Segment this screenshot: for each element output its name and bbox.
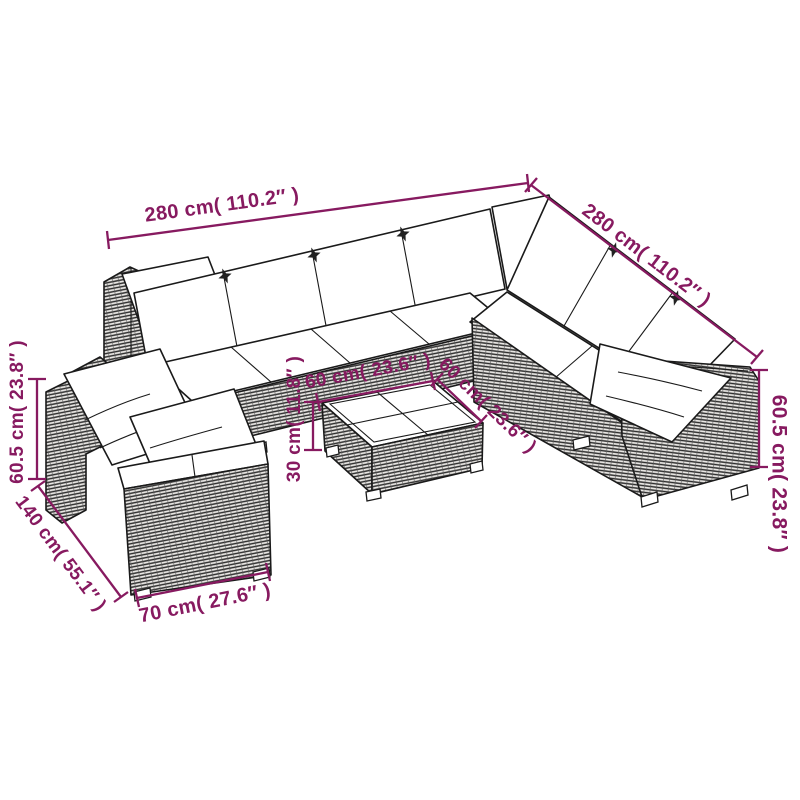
dimension-sofa-height-left: 60.5 cm( 23.8″ ) xyxy=(7,340,46,484)
sofa-foot xyxy=(731,485,748,500)
dimension-label-sofa-height-right: 60.5 cm( 23.8″ ) xyxy=(767,395,790,553)
diagram-canvas: 280 cm( 110.2″ ) 280 cm( 110.2″ ) 60.5 c… xyxy=(0,0,800,800)
product-dimension-diagram: 280 cm( 110.2″ ) 280 cm( 110.2″ ) 60.5 c… xyxy=(0,0,800,800)
dimension-label-sofa-top-width: 280 cm( 110.2″ ) xyxy=(143,184,300,227)
dimension-label-table-height: 30 cm( 11.8″ ) xyxy=(284,356,305,482)
dimension-label-sofa-height-left: 60.5 cm( 23.8″ ) xyxy=(7,340,28,484)
